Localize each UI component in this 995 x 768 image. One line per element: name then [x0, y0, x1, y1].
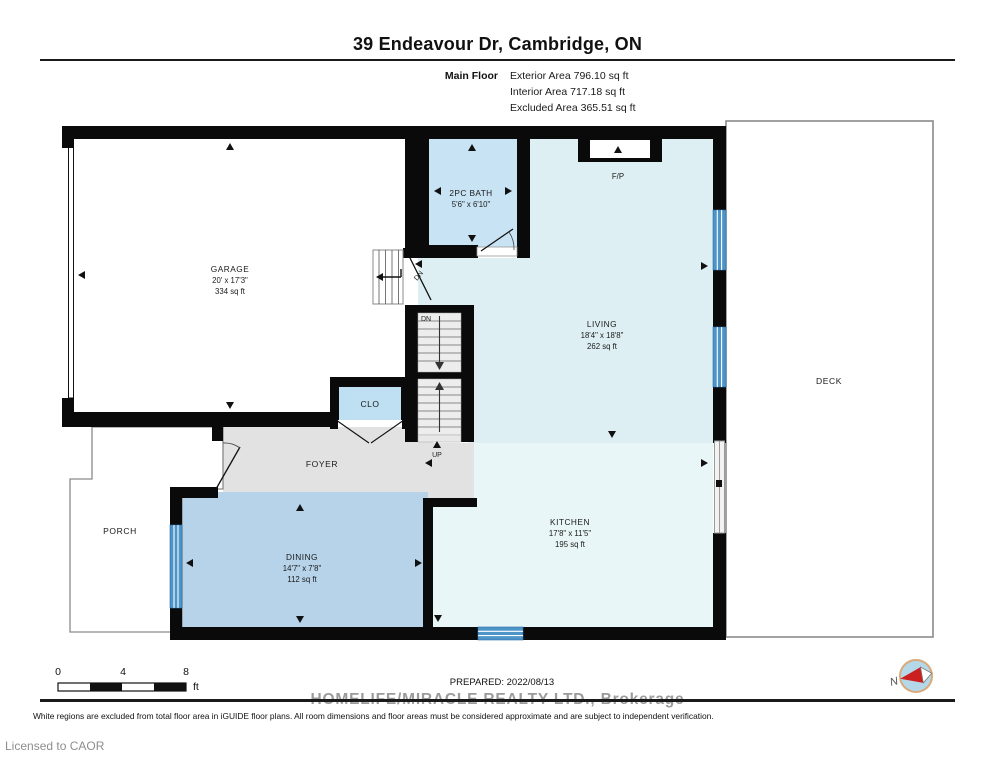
closet-label: CLO — [361, 399, 380, 409]
living-window-1 — [713, 210, 726, 270]
compass-n-label: N — [889, 675, 900, 689]
dining-label: DINING — [286, 552, 318, 562]
sliding-door — [715, 441, 725, 533]
porch-label: PORCH — [103, 526, 137, 536]
foyer-label: FOYER — [306, 459, 338, 469]
prepared-date: PREPARED: 2022/08/13 — [352, 677, 652, 688]
dining-window — [170, 525, 182, 608]
living-dims: 18'4" x 18'8" — [581, 331, 624, 340]
scale-tick-4: 4 — [113, 666, 133, 678]
dining-label-group: DINING 14'7" x 7'8" 112 sq ft — [283, 552, 322, 584]
footer-divider — [40, 699, 955, 702]
floor-plan: DECK PORCH — [0, 0, 995, 768]
scale-tick-8: 8 — [176, 666, 196, 678]
fireplace-opening — [590, 140, 650, 158]
scale-tick-0: 0 — [48, 666, 68, 678]
kitchen-label: KITCHEN — [550, 517, 590, 527]
kitchen-dims: 17'8" x 11'5" — [549, 529, 591, 538]
kitchen-window — [478, 627, 523, 640]
main-stairs: DN UP — [418, 313, 461, 459]
fireplace-label: F/P — [612, 172, 624, 181]
garage-area: 334 sq ft — [215, 287, 246, 296]
stairs-dn-label: DN — [421, 316, 431, 323]
bath-label: 2PC BATH — [449, 188, 492, 198]
scale-bar — [58, 683, 186, 691]
bath-dims: 5'6" x 6'10" — [452, 200, 491, 209]
garage-label: GARAGE — [211, 264, 250, 274]
garage-label-group: GARAGE 20' x 17'3" 334 sq ft — [211, 264, 250, 296]
disclaimer-text: White regions are excluded from total fl… — [33, 711, 963, 721]
stairs-up-label: UP — [432, 452, 442, 459]
deck-label: DECK — [816, 376, 842, 386]
garage-door — [69, 146, 74, 398]
living-window-2 — [713, 327, 726, 387]
living-label: LIVING — [587, 319, 617, 329]
kitchen-label-group: KITCHEN 17'8" x 11'5" 195 sq ft — [549, 517, 591, 549]
dining-area: 112 sq ft — [287, 575, 317, 584]
dining-dims: 14'7" x 7'8" — [283, 564, 322, 573]
kitchen-area: 195 sq ft — [555, 540, 586, 549]
living-area: 262 sq ft — [587, 342, 618, 351]
license-text: Licensed to CAOR — [5, 739, 104, 753]
garage-dims: 20' x 17'3" — [212, 276, 248, 285]
compass: N — [889, 660, 933, 692]
deck: DECK — [726, 121, 933, 637]
